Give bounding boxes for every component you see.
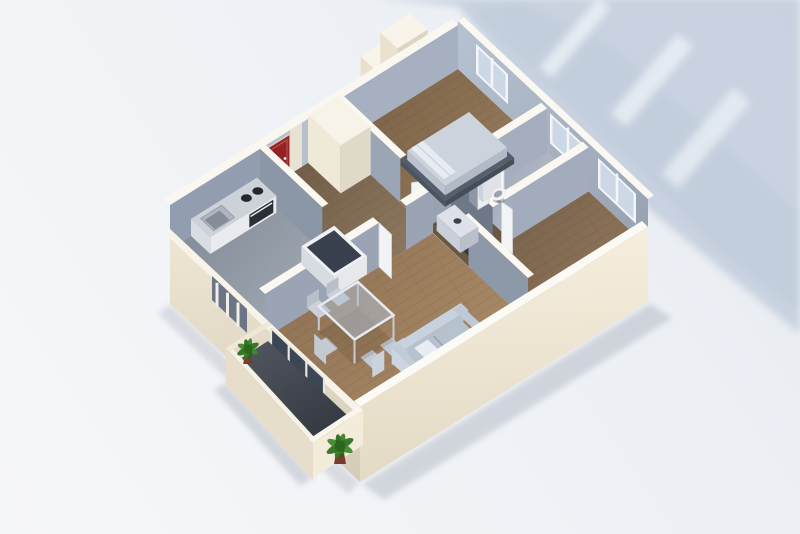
burner-2 — [252, 187, 263, 195]
door-handle — [284, 157, 287, 160]
burner-1 — [241, 194, 252, 202]
floor-plan-3d-render — [0, 0, 800, 534]
floor-plan-figure: 3D isometric rendering of an apartment f… — [0, 0, 800, 534]
